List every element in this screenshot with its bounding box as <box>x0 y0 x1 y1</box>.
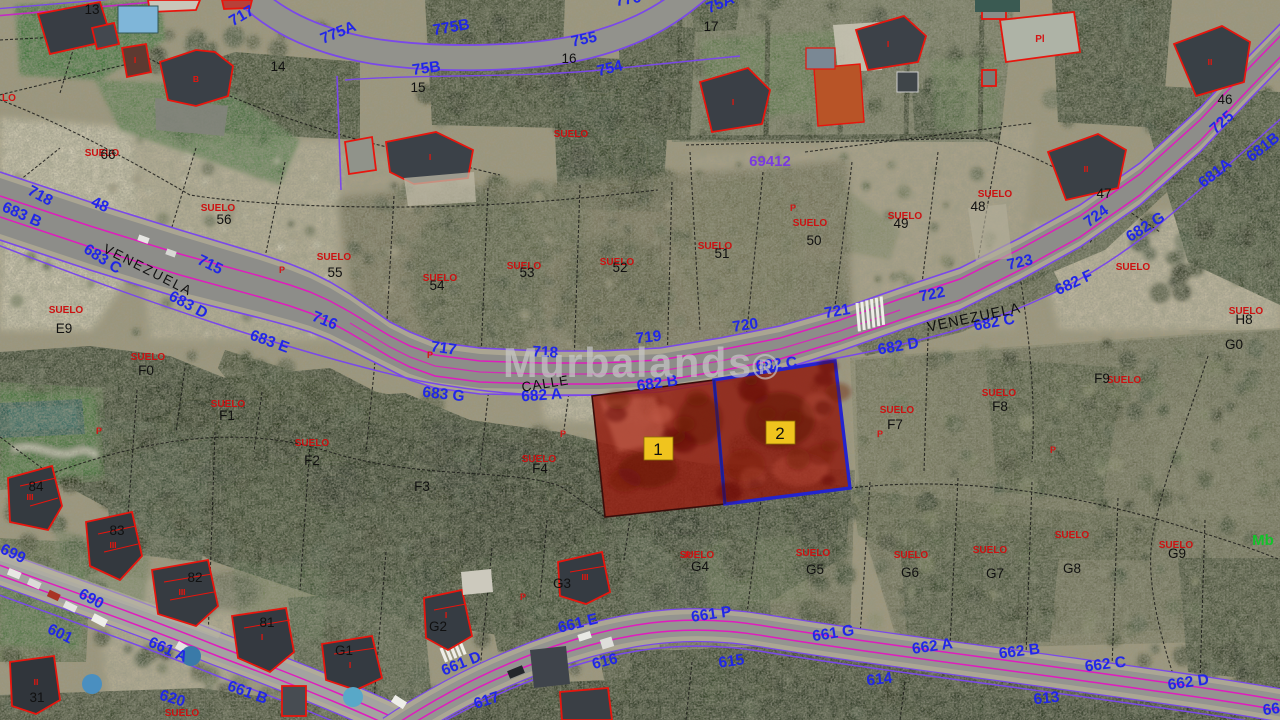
svg-text:II: II <box>1084 164 1089 174</box>
svg-text:Murbalands: Murbalands <box>503 339 753 386</box>
svg-text:G9: G9 <box>1168 546 1186 561</box>
svg-text:G6: G6 <box>901 565 919 580</box>
svg-text:G2: G2 <box>429 619 447 634</box>
svg-text:Mb: Mb <box>1252 532 1274 549</box>
svg-text:F9: F9 <box>1094 371 1110 386</box>
svg-text:SUELO: SUELO <box>49 305 84 316</box>
svg-text:82: 82 <box>187 570 202 585</box>
svg-text:SUELO: SUELO <box>131 352 166 363</box>
svg-text:G8: G8 <box>1063 561 1081 576</box>
svg-text:II: II <box>34 677 39 687</box>
svg-text:F3: F3 <box>414 479 430 494</box>
svg-text:G0: G0 <box>1225 337 1243 352</box>
svg-text:®: ® <box>752 346 779 387</box>
svg-text:717: 717 <box>430 338 458 358</box>
svg-text:SUELO: SUELO <box>793 218 828 229</box>
svg-text:G4: G4 <box>691 559 710 574</box>
svg-text:G3: G3 <box>553 576 571 591</box>
svg-text:SUELO: SUELO <box>796 548 831 559</box>
svg-text:LO: LO <box>2 93 16 104</box>
svg-text:I: I <box>887 39 889 49</box>
svg-text:52: 52 <box>612 260 627 275</box>
svg-text:1: 1 <box>653 440 662 459</box>
svg-text:P: P <box>427 350 433 360</box>
svg-text:615: 615 <box>717 651 745 671</box>
svg-text:13: 13 <box>84 2 99 17</box>
svg-text:81: 81 <box>259 615 274 630</box>
svg-text:614: 614 <box>866 669 894 689</box>
svg-text:69412: 69412 <box>749 153 791 170</box>
svg-text:P: P <box>877 429 883 439</box>
svg-text:F8: F8 <box>992 399 1008 414</box>
svg-text:47: 47 <box>1096 186 1111 201</box>
svg-text:SUELO: SUELO <box>1055 530 1090 541</box>
svg-text:51: 51 <box>714 246 729 261</box>
svg-text:48: 48 <box>970 199 985 214</box>
svg-text:16: 16 <box>561 51 576 66</box>
svg-text:I: I <box>429 152 431 162</box>
svg-text:F4: F4 <box>532 461 548 476</box>
svg-text:SUELO: SUELO <box>894 550 929 561</box>
svg-text:613: 613 <box>1033 689 1061 709</box>
svg-text:55: 55 <box>327 265 342 280</box>
svg-text:P: P <box>790 203 796 213</box>
svg-text:G1: G1 <box>335 643 353 658</box>
svg-text:66: 66 <box>1262 700 1280 719</box>
svg-text:G5: G5 <box>806 562 824 577</box>
svg-text:53: 53 <box>519 265 534 280</box>
svg-text:46: 46 <box>1217 92 1232 107</box>
svg-text:SUELO: SUELO <box>554 129 589 140</box>
svg-text:III: III <box>581 572 588 582</box>
svg-text:SUELO: SUELO <box>973 545 1008 556</box>
svg-text:P: P <box>560 429 566 439</box>
svg-text:H8: H8 <box>1235 312 1252 327</box>
svg-text:15: 15 <box>410 80 425 95</box>
svg-text:SUELO: SUELO <box>982 388 1017 399</box>
svg-text:I: I <box>732 97 734 107</box>
svg-text:SUELO: SUELO <box>1107 375 1142 386</box>
svg-text:F7: F7 <box>887 417 903 432</box>
svg-text:83: 83 <box>109 523 124 538</box>
svg-text:54: 54 <box>429 278 445 293</box>
svg-text:P: P <box>279 265 285 275</box>
svg-text:F0: F0 <box>138 363 154 378</box>
svg-text:SUELO: SUELO <box>317 252 352 263</box>
svg-text:2: 2 <box>775 424 784 443</box>
svg-text:III: III <box>109 540 116 550</box>
svg-text:31: 31 <box>29 690 44 705</box>
svg-text:P: P <box>96 426 102 436</box>
svg-text:50: 50 <box>806 233 821 248</box>
svg-text:56: 56 <box>216 212 231 227</box>
svg-text:II: II <box>1208 57 1213 67</box>
svg-text:F2: F2 <box>304 453 320 468</box>
svg-text:Pl: Pl <box>1035 34 1045 45</box>
svg-text:I: I <box>261 632 263 642</box>
svg-text:SUELO: SUELO <box>880 405 915 416</box>
svg-text:I: I <box>349 660 351 670</box>
svg-text:84: 84 <box>28 479 44 494</box>
svg-text:SUELO: SUELO <box>165 708 200 719</box>
svg-text:P: P <box>520 592 526 602</box>
svg-text:14: 14 <box>270 59 286 74</box>
svg-text:17: 17 <box>703 19 718 34</box>
svg-text:49: 49 <box>893 216 908 231</box>
svg-text:P: P <box>1050 445 1056 455</box>
svg-text:66: 66 <box>100 147 115 162</box>
svg-text:E9: E9 <box>56 321 73 336</box>
svg-text:SUELO: SUELO <box>1116 262 1151 273</box>
svg-text:III: III <box>178 587 185 597</box>
svg-text:I: I <box>134 55 136 65</box>
svg-text:F1: F1 <box>219 408 235 423</box>
svg-text:G7: G7 <box>986 566 1004 581</box>
svg-text:B: B <box>193 74 199 84</box>
svg-text:SUELO: SUELO <box>295 438 330 449</box>
